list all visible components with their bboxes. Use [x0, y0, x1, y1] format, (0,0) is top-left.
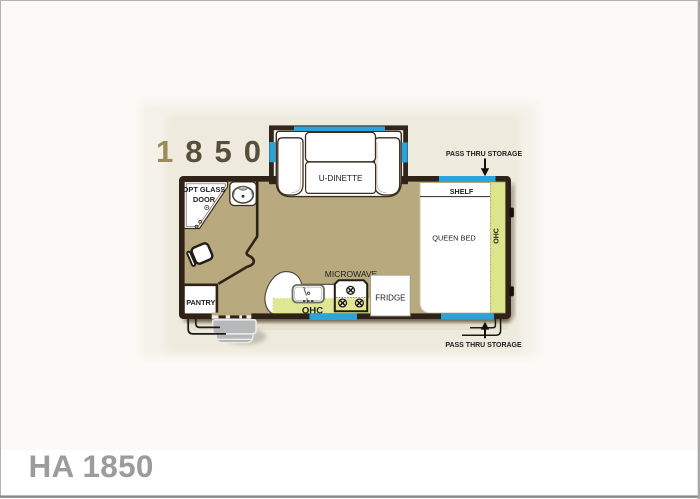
- svg-text:DOOR: DOOR: [193, 195, 216, 204]
- svg-text:SHELF: SHELF: [450, 187, 474, 196]
- svg-text:U-DINETTE: U-DINETTE: [319, 174, 363, 183]
- svg-text:HA 1850: HA 1850: [29, 448, 154, 484]
- svg-text:OHC: OHC: [494, 228, 501, 244]
- svg-text:PANTRY: PANTRY: [186, 298, 215, 307]
- svg-text:FRIDGE: FRIDGE: [375, 293, 405, 302]
- svg-text:OPT GLASS: OPT GLASS: [183, 185, 226, 194]
- svg-text:PASS THRU STORAGE: PASS THRU STORAGE: [445, 342, 522, 349]
- svg-text:MICROWAVE: MICROWAVE: [325, 269, 378, 279]
- svg-text:PASS THRU STORAGE: PASS THRU STORAGE: [446, 151, 523, 158]
- svg-text:1850: 1850: [156, 134, 273, 169]
- svg-text:QUEEN BED: QUEEN BED: [432, 233, 476, 242]
